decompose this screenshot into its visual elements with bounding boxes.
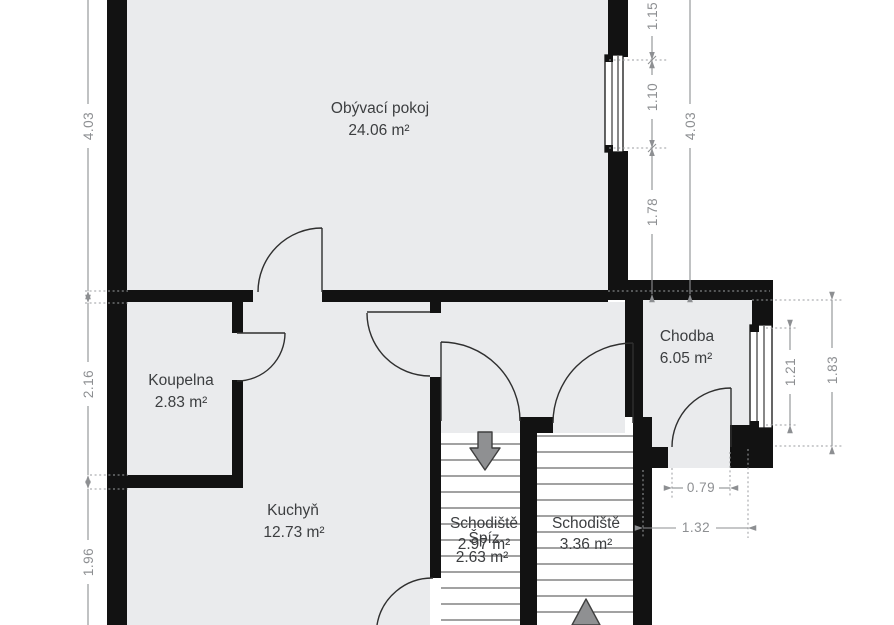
- dim-right-below-window: 1.78: [645, 198, 660, 226]
- dim-left-kitchen: 1.96: [81, 548, 96, 576]
- bathroom-label: Koupelna: [148, 372, 214, 389]
- living-room-door-threshold: [253, 290, 322, 302]
- bathroom-area: 2.83 m²: [155, 394, 208, 411]
- hallway-floor: [643, 299, 752, 447]
- living-room-window: [605, 55, 623, 152]
- dim-left-living: 4.03: [81, 112, 96, 140]
- dim-right-above-window: 1.15: [645, 2, 660, 30]
- kitchen-label: Kuchyň: [267, 502, 319, 519]
- passage-floor: [440, 302, 625, 433]
- kitchen-floor-upper: [243, 302, 430, 487]
- living-room-area: 24.06 m²: [348, 122, 409, 139]
- dim-entry-door: 0.79: [687, 480, 715, 495]
- floor-plan: Obývací pokoj 24.06 m² Koupelna 2.83 m² …: [0, 0, 894, 625]
- dim-right-total: 4.03: [683, 112, 698, 140]
- floor-plan-canvas: Obývací pokoj 24.06 m² Koupelna 2.83 m² …: [0, 0, 894, 625]
- stair-right-label: Schodiště: [552, 515, 620, 532]
- living-room-floor: [127, 0, 608, 290]
- kitchen-area: 12.73 m²: [263, 524, 324, 541]
- dim-entry-total: 1.32: [682, 520, 710, 535]
- hallway-area: 6.05 m²: [660, 350, 713, 367]
- dim-hall-total: 1.83: [825, 356, 840, 384]
- hallway-window: [750, 325, 772, 428]
- dim-hall-window: 1.21: [783, 358, 798, 386]
- living-room-label: Obývací pokoj: [331, 100, 429, 117]
- pantry-area: 2.63 m²: [456, 549, 509, 566]
- bathroom-door-threshold: [232, 333, 243, 380]
- stair-right-area: 3.36 m²: [560, 536, 613, 553]
- dim-right-window: 1.10: [645, 83, 660, 111]
- hallway-label: Chodba: [660, 328, 715, 345]
- pantry-label: Špíz: [468, 530, 499, 547]
- kitchen-door-threshold: [430, 313, 441, 377]
- dim-left-bathroom: 2.16: [81, 370, 96, 398]
- entry-door-threshold: [668, 447, 730, 468]
